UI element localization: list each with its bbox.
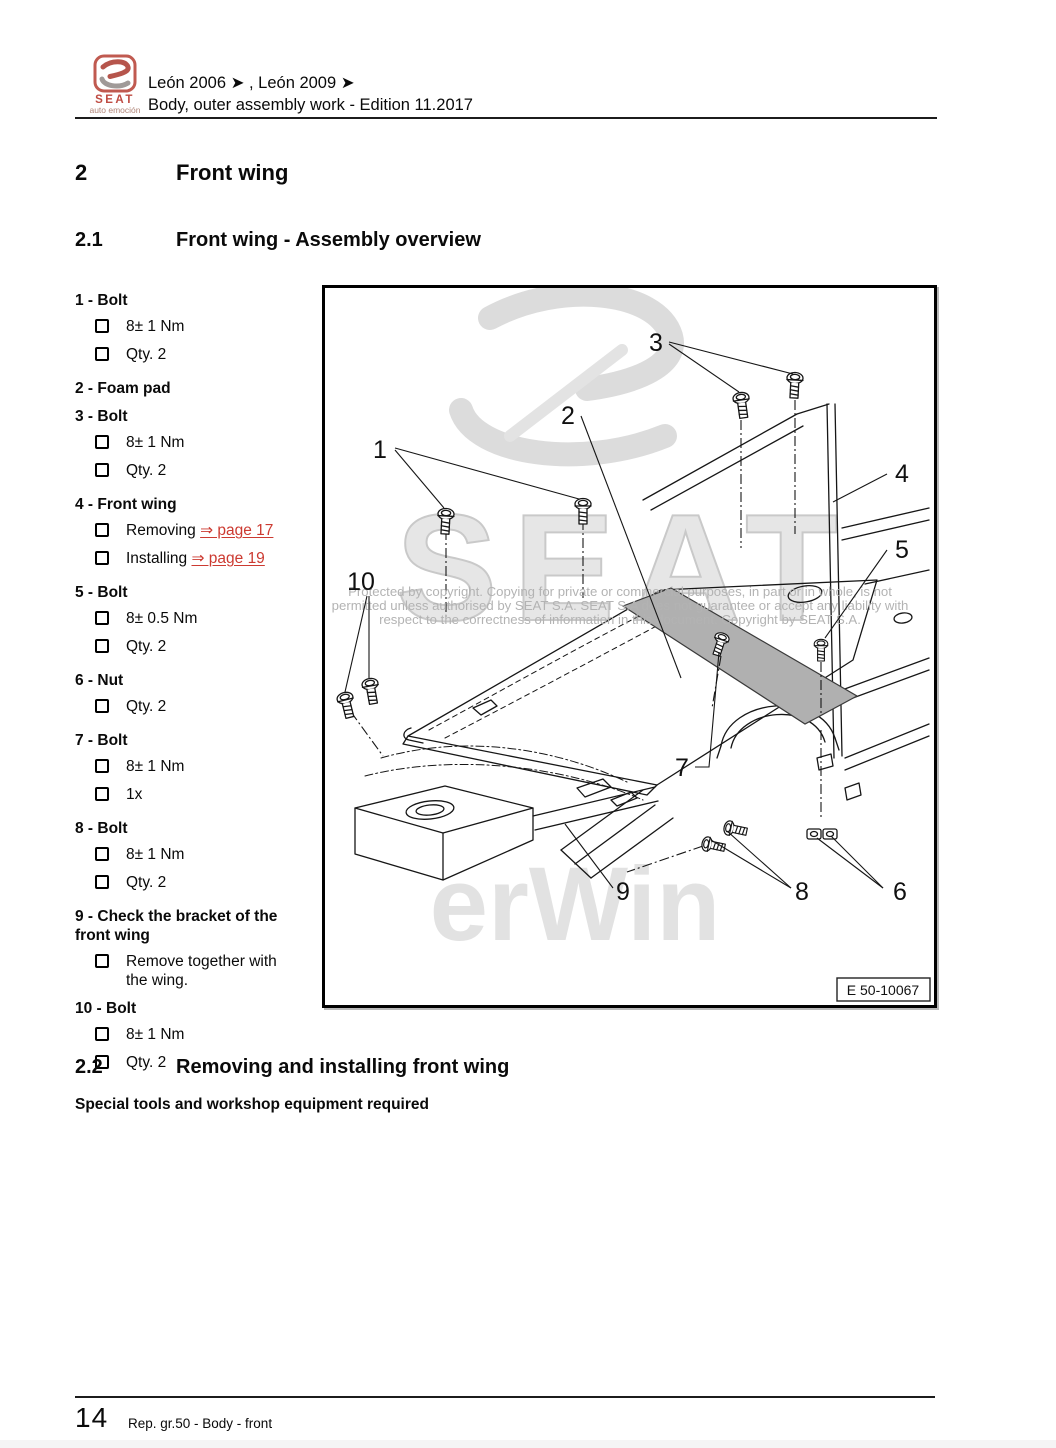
- checkbox-icon: [95, 954, 109, 968]
- checkbox-icon: [95, 787, 109, 801]
- part-detail-text: Qty. 2: [126, 873, 166, 892]
- copyright-line: permitted unless authorised by SEAT S.A.…: [332, 598, 909, 613]
- parts-list-item: 2 - Foam pad: [75, 379, 307, 398]
- part-title: 6 - Nut: [75, 671, 307, 690]
- header: SEAT auto emoción León 2006 ➤ , León 200…: [0, 0, 1056, 120]
- figure-label-text: E 50-10067: [847, 982, 920, 998]
- part-detail-text: 8± 1 Nm: [126, 433, 184, 452]
- checkbox-icon: [95, 523, 109, 537]
- header-text: León 2006 ➤ , León 2009 ➤ Body, outer as…: [148, 72, 473, 116]
- callout-number: 10: [347, 568, 375, 596]
- callout-number: 5: [895, 536, 909, 564]
- section-2-number: 2: [75, 160, 87, 186]
- bolt-icon-3a: [732, 391, 751, 418]
- seat-watermark-logo: [461, 295, 672, 455]
- nut-icon-6a: [807, 829, 821, 839]
- part-detail-row: 8± 1 Nm: [75, 842, 307, 870]
- callout-number: 9: [616, 878, 630, 906]
- part-detail-row: 8± 1 Nm: [75, 1022, 307, 1050]
- page-link[interactable]: ⇒ page 19: [191, 550, 264, 567]
- page-link[interactable]: ⇒ page 17: [200, 522, 273, 539]
- part-detail-row: Qty. 2: [75, 634, 307, 662]
- part-detail-text: Qty. 2: [126, 697, 166, 716]
- part-title: 2 - Foam pad: [75, 379, 307, 398]
- part-detail-row: Qty. 2: [75, 342, 307, 370]
- checkbox-icon: [95, 319, 109, 333]
- part-detail-text: 8± 1 Nm: [126, 845, 184, 864]
- callout-number: 3: [649, 329, 663, 357]
- seat-watermark-wordmark: SEAT: [396, 483, 854, 653]
- part-detail-text: Qty. 2: [126, 637, 166, 656]
- part-detail-text: Installing ⇒ page 19: [126, 549, 265, 568]
- parts-list-item: 1 - Bolt8± 1 NmQty. 2: [75, 291, 307, 370]
- part-title: 5 - Bolt: [75, 583, 307, 602]
- checkbox-icon: [95, 699, 109, 713]
- copyright-line: Protected by copyright. Copying for priv…: [348, 584, 892, 599]
- section-2-1-title: Front wing - Assembly overview: [176, 229, 481, 252]
- part-detail-row: Remove together with the wing.: [75, 949, 307, 990]
- checkbox-icon: [95, 435, 109, 449]
- seat-logo: SEAT auto emoción: [86, 54, 144, 116]
- part-detail-text: Qty. 2: [126, 461, 166, 480]
- header-model-line: León 2006 ➤ , León 2009 ➤: [148, 72, 473, 94]
- part-detail-text: 8± 1 Nm: [126, 1025, 184, 1044]
- checkbox-icon: [95, 463, 109, 477]
- parts-list-item: 3 - Bolt8± 1 NmQty. 2: [75, 407, 307, 486]
- part-title: 7 - Bolt: [75, 731, 307, 750]
- checkbox-icon: [95, 639, 109, 653]
- section-2-title: Front wing: [176, 160, 288, 186]
- checkbox-icon: [95, 847, 109, 861]
- special-tools-subheading: Special tools and workshop equipment req…: [75, 1096, 429, 1114]
- callout-number: 2: [561, 402, 575, 430]
- part-detail-row: Qty. 2: [75, 694, 307, 722]
- part-detail-row: Installing ⇒ page 19: [75, 546, 307, 574]
- part-detail-text: 8± 0.5 Nm: [126, 609, 197, 628]
- copyright-line: respect to the correctness of informatio…: [379, 612, 861, 627]
- nut-icon-6b: [823, 829, 837, 839]
- checkbox-icon: [95, 551, 109, 565]
- figure-label: E 50-10067: [837, 978, 930, 1001]
- part-title: 4 - Front wing: [75, 495, 307, 514]
- part-title: 10 - Bolt: [75, 999, 307, 1018]
- part-title: 8 - Bolt: [75, 819, 307, 838]
- part-detail-row: 8± 0.5 Nm: [75, 606, 307, 634]
- part-detail-row: Removing ⇒ page 17: [75, 518, 307, 546]
- part-detail-text: Removing ⇒ page 17: [126, 521, 273, 540]
- part-detail-row: 8± 1 Nm: [75, 430, 307, 458]
- front-wing-assembly-diagram: SEAT erWin: [325, 288, 934, 1005]
- bolt-icon-8b: [723, 820, 748, 839]
- part-detail-row: Qty. 2: [75, 458, 307, 486]
- parts-list-item: 4 - Front wingRemoving ⇒ page 17Installi…: [75, 495, 307, 574]
- part-detail-text: 8± 1 Nm: [126, 317, 184, 336]
- checkbox-icon: [95, 875, 109, 889]
- footer-caption: Rep. gr.50 - Body - front: [128, 1416, 272, 1431]
- parts-list-item: 5 - Bolt8± 0.5 NmQty. 2: [75, 583, 307, 662]
- parts-list-item: 7 - Bolt8± 1 Nm1x: [75, 731, 307, 810]
- parts-list-item: 6 - NutQty. 2: [75, 671, 307, 722]
- bolt-icon-3b: [786, 372, 803, 398]
- part-detail-row: 8± 1 Nm: [75, 314, 307, 342]
- part-detail-text: 1x: [126, 785, 142, 804]
- section-2-2-title: Removing and installing front wing: [176, 1056, 509, 1079]
- part-detail-text: Qty. 2: [126, 345, 166, 364]
- part-detail-row: 1x: [75, 782, 307, 810]
- manual-page: { "header": { "logo": { "brand": "SEAT",…: [0, 0, 1056, 1448]
- callout-number: 7: [675, 754, 689, 782]
- checkbox-icon: [95, 347, 109, 361]
- copyright-watermark: Protected by copyright. Copying for priv…: [332, 584, 909, 627]
- parts-list: 1 - Bolt8± 1 NmQty. 22 - Foam pad3 - Bol…: [75, 282, 307, 1078]
- bolt-icon-10a: [336, 691, 358, 720]
- part-detail-row: Qty. 2: [75, 870, 307, 898]
- part-title: 9 - Check the bracket of the front wing: [75, 907, 307, 945]
- section-2-1-number: 2.1: [75, 229, 103, 252]
- part-detail-text: Qty. 2: [126, 1053, 166, 1072]
- parts-list-item: 8 - Bolt8± 1 NmQty. 2: [75, 819, 307, 898]
- section-2-2-number: 2.2: [75, 1056, 103, 1079]
- footer-rule: [75, 1396, 935, 1398]
- callout-number: 1: [373, 436, 387, 464]
- bolt-icon-10b: [361, 677, 381, 705]
- part-title: 1 - Bolt: [75, 291, 307, 310]
- header-edition-line: Body, outer assembly work - Edition 11.2…: [148, 94, 473, 116]
- part-detail-text: Remove together with the wing.: [126, 952, 286, 990]
- parts-list-item: 9 - Check the bracket of the front wingR…: [75, 907, 307, 990]
- page-number: 14: [75, 1402, 108, 1434]
- checkbox-icon: [95, 759, 109, 773]
- part-title: 3 - Bolt: [75, 407, 307, 426]
- seat-logo-tagline: auto emoción: [89, 105, 140, 115]
- figure-frame: SEAT erWin: [322, 285, 937, 1008]
- part-detail-row: 8± 1 Nm: [75, 754, 307, 782]
- header-rule: [75, 117, 937, 119]
- callout-number: 6: [893, 878, 907, 906]
- checkbox-icon: [95, 1027, 109, 1041]
- callout-number: 4: [895, 460, 909, 488]
- callout-number: 8: [795, 878, 809, 906]
- page-edge: [0, 1440, 1056, 1448]
- checkbox-icon: [95, 611, 109, 625]
- part-detail-text: 8± 1 Nm: [126, 757, 184, 776]
